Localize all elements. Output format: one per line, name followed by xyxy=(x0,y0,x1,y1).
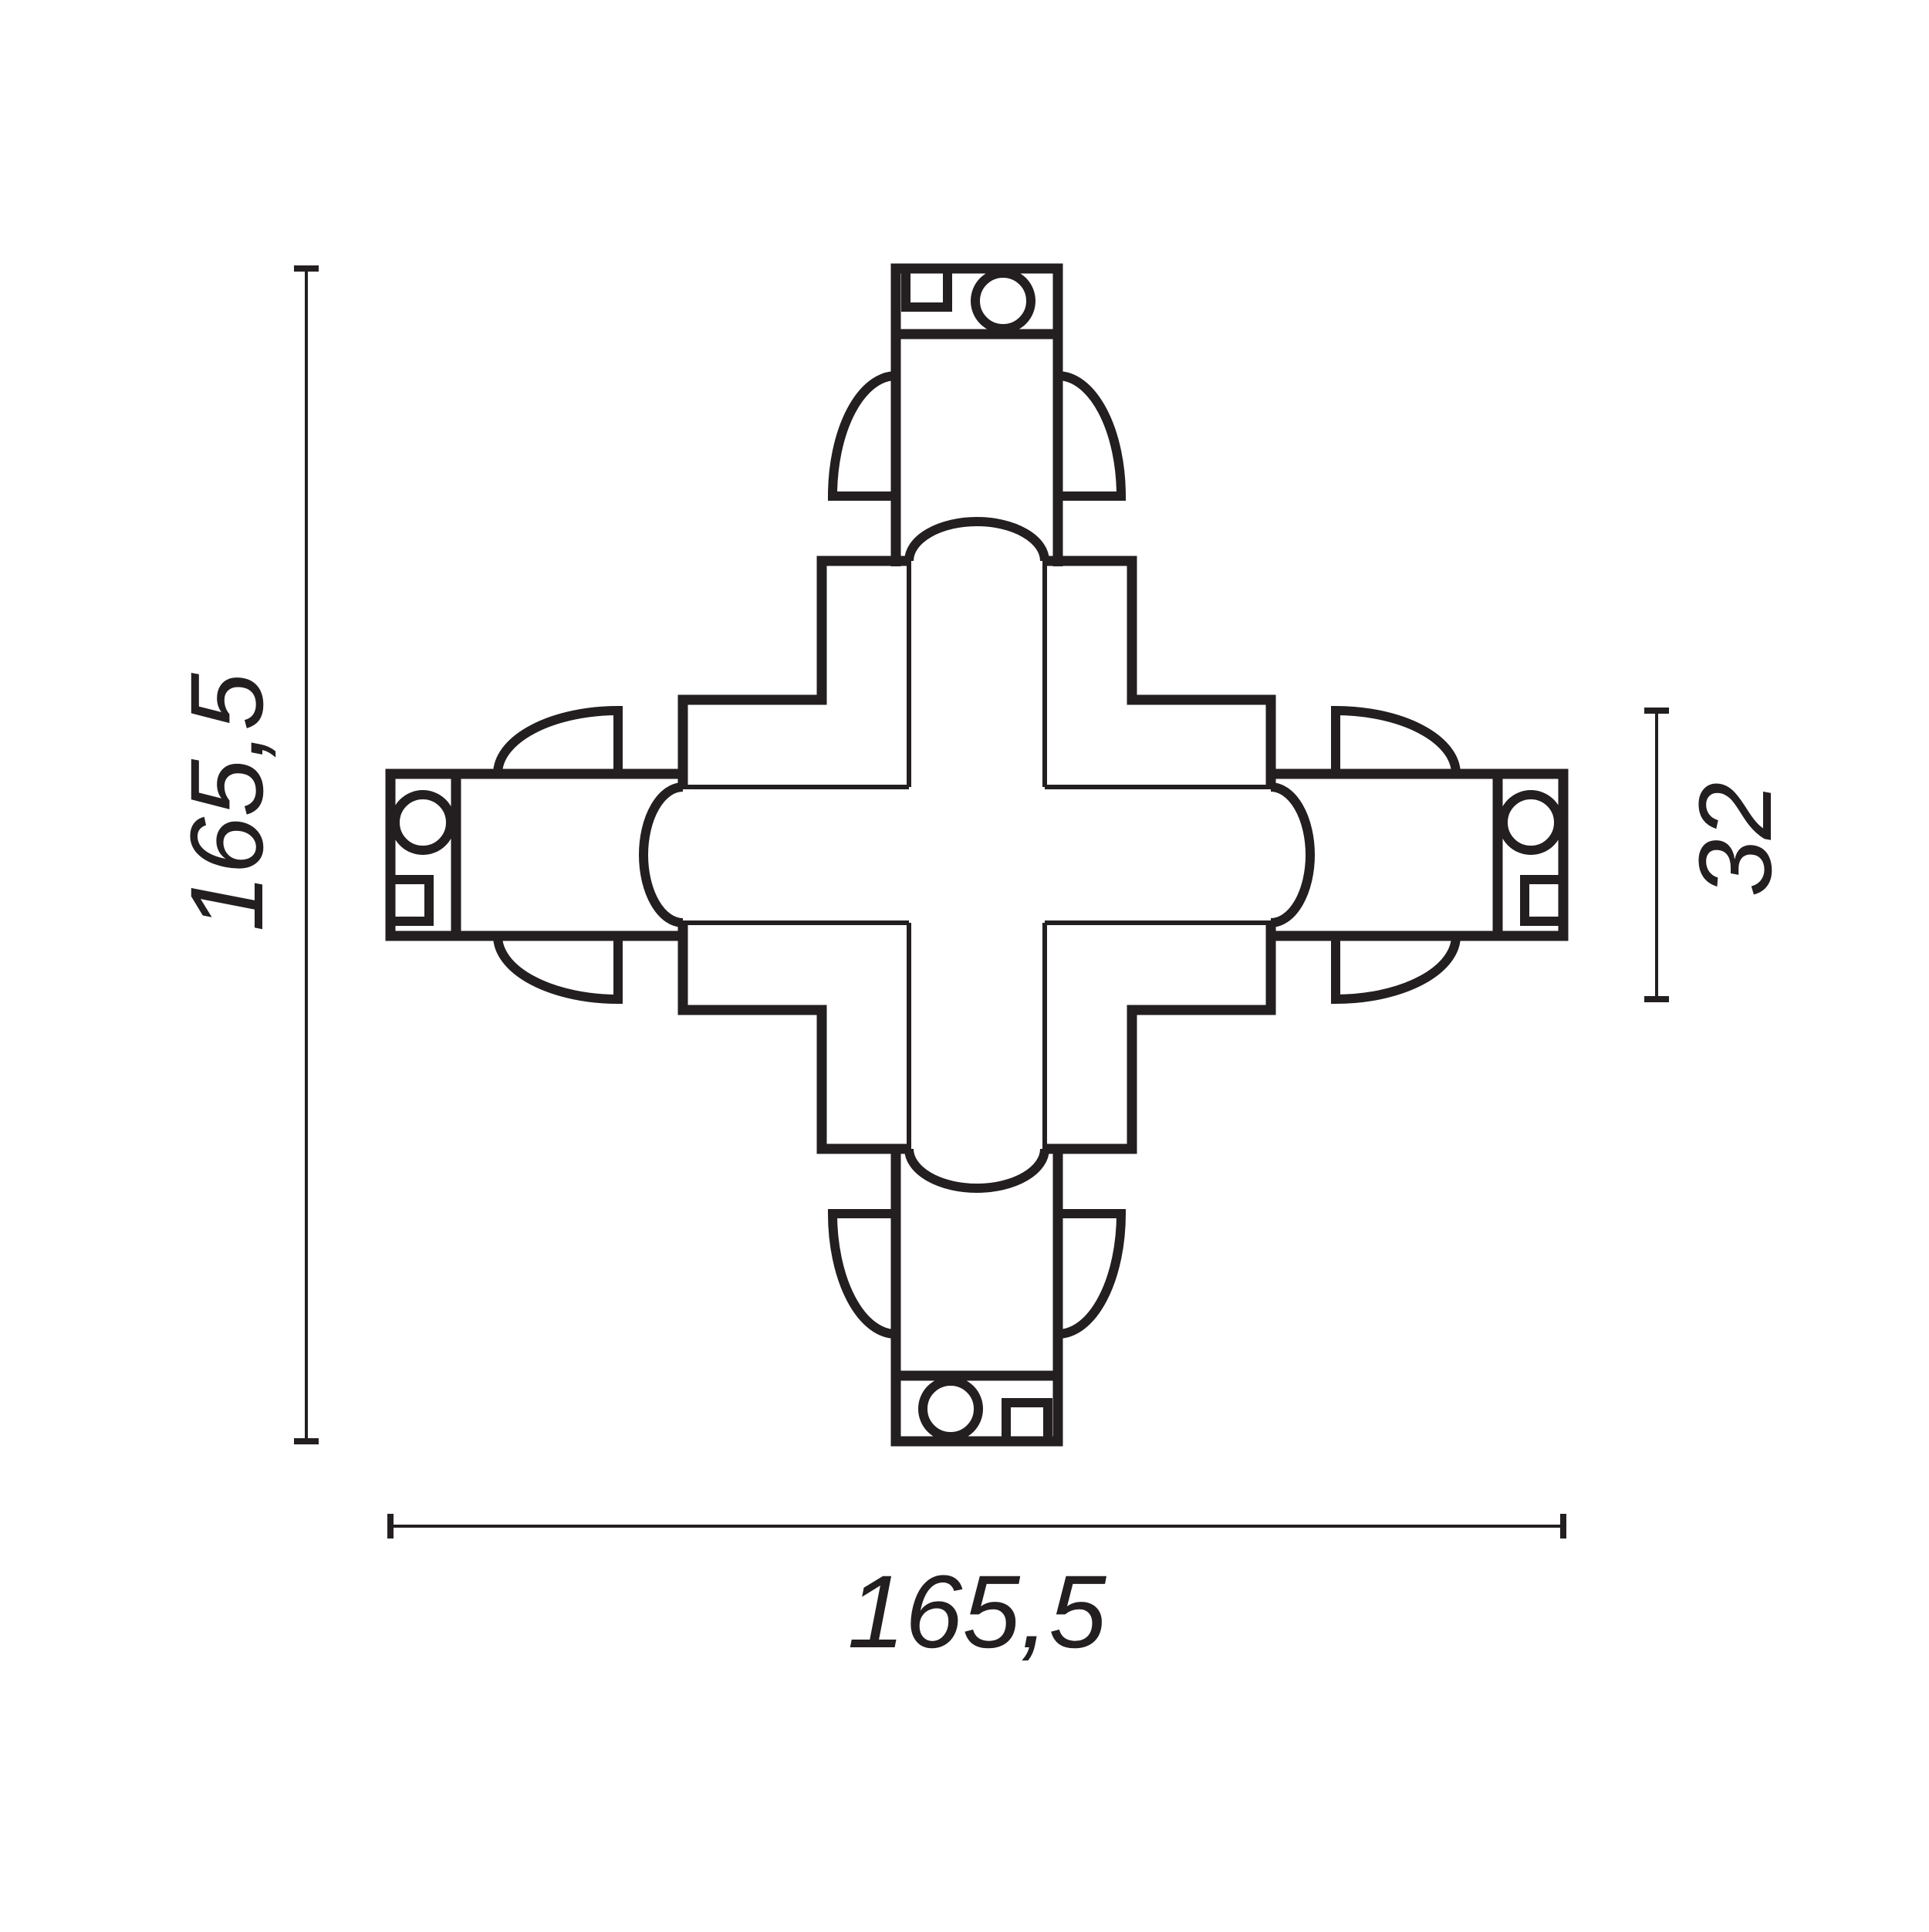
arm-top-edges xyxy=(896,334,1058,566)
arm-edges xyxy=(456,334,1498,1376)
ear-bottom-left xyxy=(833,1214,896,1334)
ear-right-top xyxy=(1336,711,1456,774)
dimension-label-width: 165,5 xyxy=(847,1555,1106,1670)
inner-arch-bottom xyxy=(909,1149,1045,1188)
x-connector-technical-drawing: 165,5 165,5 32 xyxy=(0,0,1929,1932)
contact-square-right xyxy=(1525,880,1563,921)
contact-circle-top xyxy=(975,273,1031,329)
inner-cross-edges xyxy=(683,561,1271,1149)
dimension-labels: 165,5 165,5 32 xyxy=(170,673,1793,1670)
dimension-line-strokes xyxy=(306,269,1657,1526)
ear-left-bottom xyxy=(498,936,618,999)
inner-arch-top xyxy=(909,522,1045,561)
connector-figure xyxy=(294,269,1669,1539)
inner-edges-left xyxy=(683,787,909,923)
body-steps xyxy=(683,561,1271,1149)
contact-square-top xyxy=(906,269,948,307)
contact-circle-bottom xyxy=(923,1381,978,1437)
inner-edges-right xyxy=(1045,787,1271,923)
dimension-lines xyxy=(294,269,1669,1539)
contact-square-left xyxy=(390,880,429,921)
inner-rounded-cross xyxy=(644,522,1310,1188)
dimension-ticks xyxy=(294,269,1669,1539)
ear-bottom-right xyxy=(1058,1214,1121,1334)
inner-edges-bottom xyxy=(909,923,1045,1149)
inner-edges-top xyxy=(909,561,1045,787)
inner-cross-arches xyxy=(644,522,1310,1188)
contact-circle-left xyxy=(395,795,451,850)
ear-top-left xyxy=(833,376,896,496)
arm-bottom-edges xyxy=(896,1144,1058,1376)
ear-right-bottom xyxy=(1336,936,1456,999)
cap-contacts xyxy=(390,269,1563,1441)
ear-top-right xyxy=(1058,376,1121,496)
step-bottom-right xyxy=(1045,923,1271,1149)
arm-right-edges xyxy=(1266,774,1498,936)
contact-square-bottom xyxy=(1006,1403,1048,1441)
drawing-canvas: 165,5 165,5 32 xyxy=(0,0,1929,1932)
step-bottom-left xyxy=(683,923,909,1149)
step-top-left xyxy=(683,561,909,787)
inner-arch-left xyxy=(644,787,683,923)
inner-arch-right xyxy=(1271,787,1310,923)
connector-end-caps xyxy=(390,269,1563,1441)
dimension-label-depth: 32 xyxy=(1678,782,1793,897)
arm-left-edges xyxy=(456,774,687,936)
step-top-right xyxy=(1045,561,1271,787)
ear-left-top xyxy=(498,711,618,774)
contact-circle-right xyxy=(1503,795,1559,850)
dimension-label-height: 165,5 xyxy=(170,673,285,932)
